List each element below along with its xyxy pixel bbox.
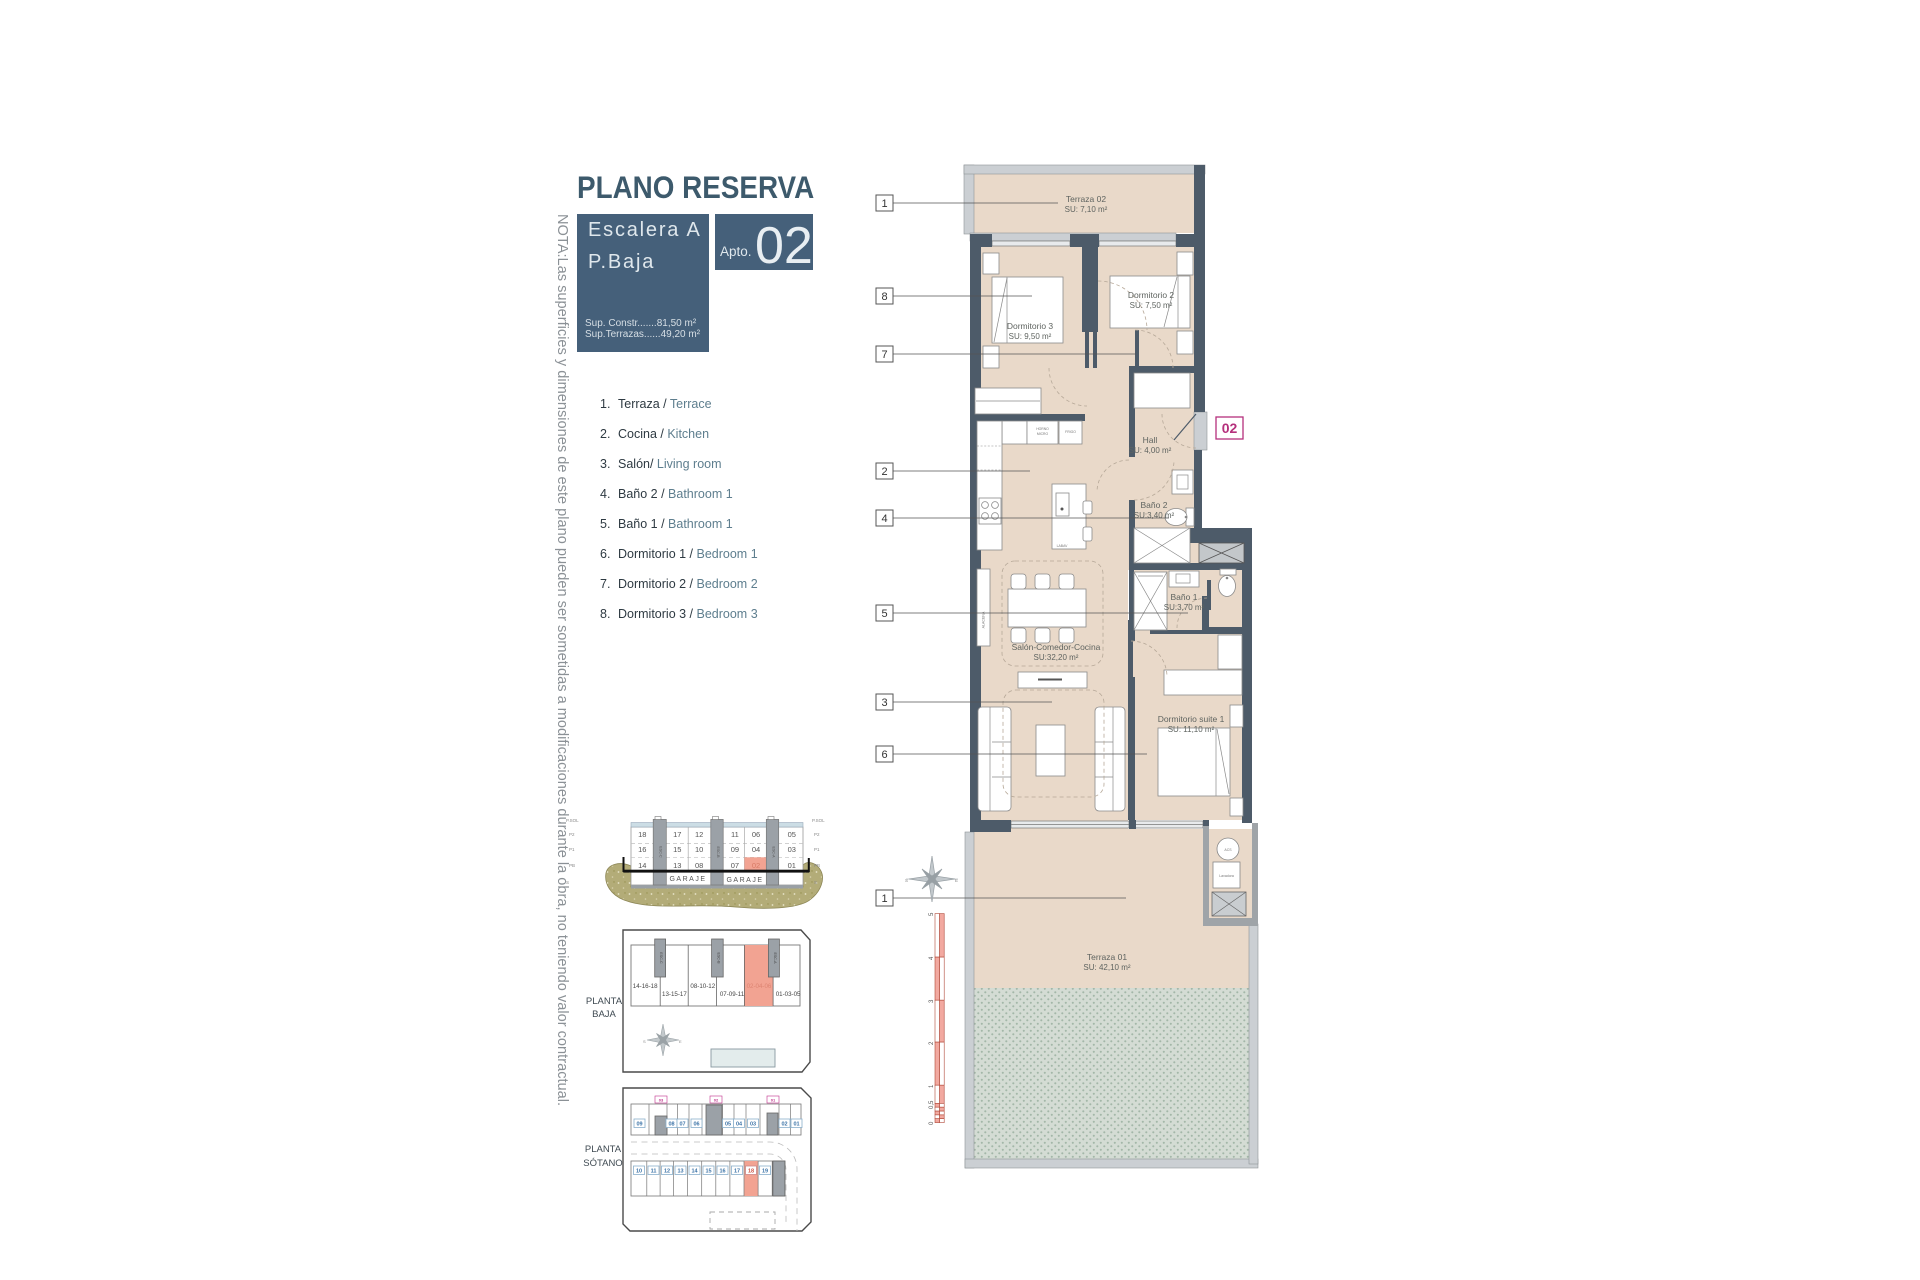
svg-text:0: 0: [929, 1121, 935, 1125]
svg-text:14: 14: [691, 1169, 698, 1175]
svg-text:ESC-A: ESC-A: [772, 847, 776, 859]
svg-text:ESC-B: ESC-B: [716, 847, 720, 859]
svg-text:08: 08: [668, 1122, 674, 1128]
svg-text:03: 03: [788, 845, 796, 854]
svg-text:1: 1: [881, 893, 887, 905]
svg-text:S: S: [905, 878, 908, 883]
svg-text:P.SOL: P.SOL: [812, 818, 825, 823]
svg-text:15: 15: [705, 1169, 711, 1175]
svg-text:6.: 6.: [600, 547, 610, 561]
svg-text:12: 12: [695, 830, 703, 839]
svg-text:07: 07: [679, 1122, 685, 1128]
svg-text:10: 10: [636, 1169, 642, 1175]
svg-text:3.: 3.: [600, 457, 610, 471]
svg-text:Baño 1 / Bathroom 1: Baño 1 / Bathroom 1: [618, 517, 733, 531]
svg-text:18: 18: [748, 1169, 754, 1175]
svg-text:4: 4: [881, 513, 887, 525]
svg-text:7: 7: [881, 349, 887, 361]
svg-text:02: 02: [714, 1098, 719, 1103]
svg-text:E: E: [955, 878, 958, 883]
svg-text:GARAJE: GARAJE: [669, 876, 706, 883]
svg-text:P1: P1: [569, 847, 575, 852]
svg-text:Terraza / Terrace: Terraza / Terrace: [618, 397, 712, 411]
svg-text:02-04-06: 02-04-06: [747, 983, 772, 990]
svg-text:P.Baja: P.Baja: [588, 251, 655, 273]
svg-text:P.SOL: P.SOL: [566, 818, 579, 823]
svg-text:Baño 1: Baño 1: [1171, 592, 1198, 602]
svg-text:7.: 7.: [600, 577, 610, 591]
svg-text:S: S: [814, 880, 817, 885]
svg-text:11: 11: [651, 1169, 657, 1175]
svg-text:10: 10: [695, 845, 703, 854]
svg-text:4.: 4.: [600, 487, 610, 501]
svg-text:14: 14: [638, 861, 646, 870]
svg-text:8: 8: [881, 291, 887, 303]
svg-text:08-10-12: 08-10-12: [690, 983, 715, 990]
svg-text:01-03-05: 01-03-05: [776, 991, 801, 998]
svg-text:03: 03: [750, 1122, 756, 1128]
svg-text:18: 18: [638, 830, 646, 839]
svg-text:Dormitorio 3 / Bedroom 3: Dormitorio 3 / Bedroom 3: [618, 607, 758, 621]
svg-text:02: 02: [755, 217, 813, 275]
svg-text:05: 05: [788, 830, 796, 839]
svg-text:04: 04: [736, 1122, 743, 1128]
svg-text:5: 5: [881, 608, 887, 620]
svg-text:Hall: Hall: [1143, 435, 1158, 445]
svg-text:S: S: [566, 880, 569, 885]
svg-text:2.: 2.: [600, 427, 610, 441]
svg-text:09: 09: [731, 845, 739, 854]
svg-text:NOTA:Las superficies y dimensi: NOTA:Las superficies y dimensiones de es…: [554, 214, 570, 1106]
svg-text:SU:32,20 m²: SU:32,20 m²: [1034, 653, 1079, 662]
svg-text:SÓTANO: SÓTANO: [583, 1158, 622, 1169]
svg-text:06: 06: [752, 830, 760, 839]
svg-text:ESC-C: ESC-C: [659, 846, 663, 858]
svg-text:6: 6: [881, 749, 887, 761]
svg-text:HORNO: HORNO: [1036, 427, 1049, 431]
svg-text:PLANTA: PLANTA: [586, 996, 623, 1007]
svg-text:FRIGO: FRIGO: [1065, 430, 1076, 434]
svg-text:MICRO: MICRO: [1037, 432, 1049, 436]
svg-text:16: 16: [719, 1169, 725, 1175]
svg-text:SU:3,40 m²: SU:3,40 m²: [1134, 511, 1175, 520]
svg-text:13-15-17: 13-15-17: [662, 991, 687, 998]
svg-text:01: 01: [788, 861, 796, 870]
svg-text:2: 2: [929, 1041, 935, 1045]
svg-text:ESC-B: ESC-B: [716, 953, 720, 965]
svg-text:17: 17: [673, 830, 681, 839]
svg-text:1: 1: [881, 198, 887, 210]
svg-text:Cocina / Kitchen: Cocina / Kitchen: [618, 427, 709, 441]
svg-text:P2: P2: [569, 832, 575, 837]
svg-text:08: 08: [695, 861, 703, 870]
svg-text:4: 4: [929, 956, 935, 960]
svg-text:P1: P1: [814, 847, 820, 852]
svg-text:Dormitorio 2 / Bedroom 2: Dormitorio 2 / Bedroom 2: [618, 577, 758, 591]
svg-text:02: 02: [752, 861, 760, 870]
svg-text:Salón/ Living room: Salón/ Living room: [618, 457, 722, 471]
svg-text:SU: 42,10 m²: SU: 42,10 m²: [1083, 963, 1130, 972]
svg-text:5: 5: [929, 912, 935, 916]
svg-text:Terraza 01: Terraza 01: [1087, 952, 1127, 962]
svg-text:SU: 9,50 m²: SU: 9,50 m²: [1009, 332, 1052, 341]
svg-text:S: S: [643, 1039, 646, 1044]
svg-text:02: 02: [1222, 420, 1238, 436]
svg-text:Sup.Terrazas......49,20 m²: Sup.Terrazas......49,20 m²: [585, 329, 701, 340]
svg-text:2: 2: [881, 466, 887, 478]
svg-text:Baño 2 / Bathroom 1: Baño 2 / Bathroom 1: [618, 487, 733, 501]
svg-text:ESC-A: ESC-A: [773, 953, 777, 965]
svg-text:8.: 8.: [600, 607, 610, 621]
svg-text:P2: P2: [814, 832, 820, 837]
svg-text:07-09-11: 07-09-11: [720, 991, 745, 998]
svg-text:14-16-18: 14-16-18: [633, 983, 658, 990]
svg-text:07: 07: [731, 861, 739, 870]
svg-text:09: 09: [636, 1122, 642, 1128]
svg-text:03: 03: [659, 1098, 664, 1103]
svg-text:12: 12: [664, 1169, 670, 1175]
svg-text:PLANO RESERVA: PLANO RESERVA: [577, 170, 814, 205]
svg-text:13: 13: [677, 1169, 683, 1175]
svg-text:Terraza 02: Terraza 02: [1066, 194, 1106, 204]
svg-text:3: 3: [881, 697, 887, 709]
svg-text:1.: 1.: [600, 397, 610, 411]
svg-text:ALACENA: ALACENA: [982, 611, 986, 628]
svg-text:1: 1: [929, 1084, 935, 1088]
svg-text:01: 01: [771, 1098, 776, 1103]
svg-text:13: 13: [673, 861, 681, 870]
svg-text:Sup. Constr.......81,50 m²: Sup. Constr.......81,50 m²: [585, 318, 697, 329]
svg-text:11: 11: [731, 830, 739, 839]
svg-text:19: 19: [762, 1169, 768, 1175]
svg-text:Dormitorio suite 1: Dormitorio suite 1: [1158, 714, 1225, 724]
svg-text:06: 06: [693, 1122, 699, 1128]
svg-text:05: 05: [725, 1122, 731, 1128]
svg-text:SU: 11,10 m²: SU: 11,10 m²: [1168, 725, 1215, 734]
svg-text:15: 15: [673, 845, 681, 854]
svg-text:04: 04: [752, 845, 760, 854]
svg-text:01: 01: [793, 1122, 799, 1128]
svg-text:5.: 5.: [600, 517, 610, 531]
svg-text:PLANTA: PLANTA: [585, 1144, 622, 1155]
svg-text:GARAJE: GARAJE: [726, 877, 763, 884]
svg-text:Apto.: Apto.: [720, 244, 752, 259]
svg-text:E: E: [679, 1039, 682, 1044]
svg-text:ACS: ACS: [1224, 848, 1232, 852]
svg-text:PB: PB: [569, 863, 575, 868]
svg-text:SU: 4,00 m²: SU: 4,00 m²: [1129, 446, 1172, 455]
svg-text:LABAV: LABAV: [1057, 544, 1068, 548]
svg-text:SU: 7,50 m²: SU: 7,50 m²: [1130, 301, 1173, 310]
svg-text:SU: 7,10 m²: SU: 7,10 m²: [1065, 205, 1108, 214]
svg-text:PB: PB: [814, 863, 820, 868]
svg-text:Salón-Comedor-Cocina: Salón-Comedor-Cocina: [1012, 642, 1101, 652]
svg-text:SU:3,70 m²: SU:3,70 m²: [1164, 603, 1205, 612]
svg-text:Lavadora: Lavadora: [1219, 874, 1234, 878]
svg-text:BAJA: BAJA: [592, 1009, 616, 1020]
svg-text:Dormitorio 1 / Bedroom 1: Dormitorio 1 / Bedroom 1: [618, 547, 758, 561]
svg-text:17: 17: [734, 1169, 740, 1175]
svg-text:Dormitorio 3: Dormitorio 3: [1007, 321, 1054, 331]
svg-text:16: 16: [638, 845, 646, 854]
svg-text:Escalera A: Escalera A: [588, 219, 702, 241]
svg-text:0,5: 0,5: [929, 1100, 935, 1109]
svg-text:Dormitorio 2: Dormitorio 2: [1128, 290, 1175, 300]
svg-text:02: 02: [781, 1122, 787, 1128]
svg-text:ESC-C: ESC-C: [659, 952, 663, 964]
svg-text:3: 3: [929, 999, 935, 1003]
svg-text:Baño 2: Baño 2: [1141, 500, 1168, 510]
